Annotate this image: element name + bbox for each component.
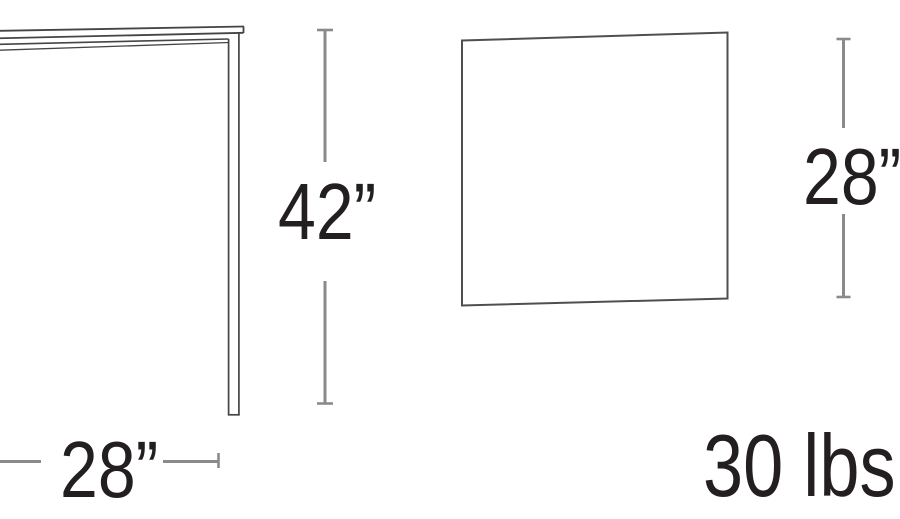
- tabletop-top-view-outline: [462, 33, 728, 306]
- width-dimension-label: 28”: [60, 430, 158, 510]
- tabletop-bottom-edge: [0, 33, 244, 39]
- tabletop-top-view-drawing: [462, 33, 728, 306]
- height-dimension-label: 42”: [278, 172, 376, 252]
- weight-label: 30 lbs: [703, 422, 896, 510]
- depth-dimension-label: 28”: [803, 137, 900, 217]
- tabletop-top-edge: [0, 27, 244, 32]
- furniture-dimension-diagram: 42” 28” 28” 30 lbs: [0, 0, 900, 519]
- table-side-view-drawing: [0, 27, 244, 415]
